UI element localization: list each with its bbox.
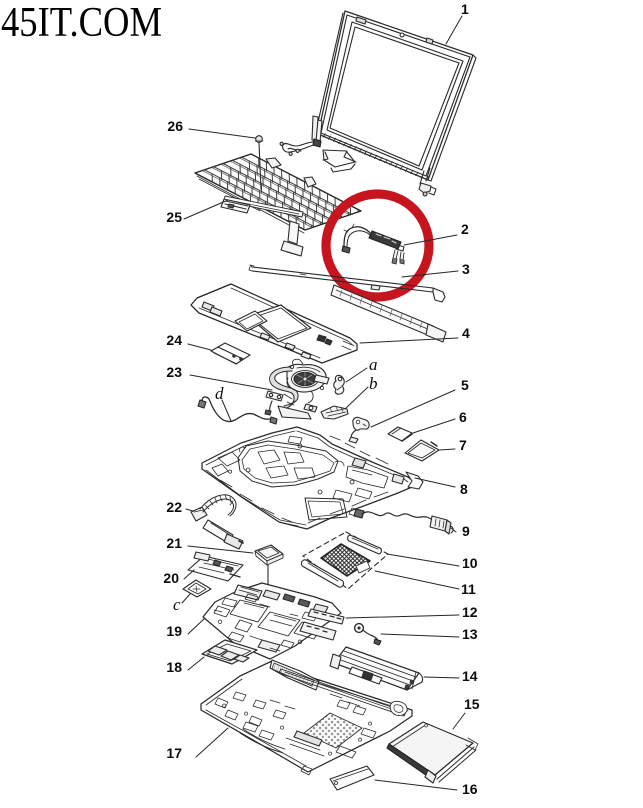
svg-text:8: 8 bbox=[460, 481, 468, 497]
svg-text:15: 15 bbox=[464, 696, 480, 712]
svg-text:20: 20 bbox=[163, 570, 179, 586]
svg-text:21: 21 bbox=[166, 535, 182, 551]
svg-text:c: c bbox=[173, 595, 181, 614]
svg-text:13: 13 bbox=[462, 626, 478, 642]
svg-text:1: 1 bbox=[461, 1, 469, 17]
svg-text:5: 5 bbox=[461, 377, 469, 393]
svg-text:25: 25 bbox=[166, 209, 182, 225]
svg-text:4: 4 bbox=[462, 325, 470, 341]
svg-text:22: 22 bbox=[166, 499, 182, 515]
svg-text:b: b bbox=[369, 374, 378, 393]
svg-text:d: d bbox=[215, 384, 224, 403]
svg-text:23: 23 bbox=[166, 364, 182, 380]
svg-text:19: 19 bbox=[166, 623, 182, 639]
svg-text:2: 2 bbox=[461, 221, 469, 237]
svg-text:7: 7 bbox=[459, 437, 467, 453]
svg-text:14: 14 bbox=[462, 668, 478, 684]
svg-text:6: 6 bbox=[459, 409, 467, 425]
svg-text:3: 3 bbox=[462, 261, 470, 277]
svg-text:24: 24 bbox=[166, 332, 182, 348]
svg-text:45IT.COM: 45IT.COM bbox=[1, 0, 162, 46]
svg-text:9: 9 bbox=[462, 523, 470, 539]
svg-text:11: 11 bbox=[461, 581, 476, 597]
svg-text:12: 12 bbox=[462, 604, 478, 620]
svg-text:17: 17 bbox=[166, 745, 182, 761]
svg-text:10: 10 bbox=[462, 555, 478, 571]
svg-text:18: 18 bbox=[166, 659, 182, 675]
svg-text:a: a bbox=[369, 355, 378, 374]
svg-text:16: 16 bbox=[462, 781, 478, 797]
svg-text:26: 26 bbox=[167, 118, 183, 134]
